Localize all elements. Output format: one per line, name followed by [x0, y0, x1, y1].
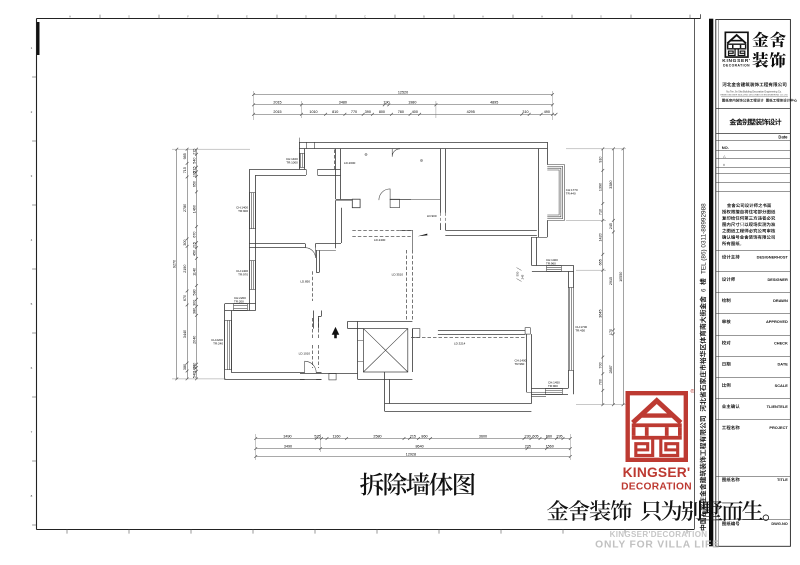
svg-text:245: 245	[521, 274, 525, 279]
svg-text:390: 390	[365, 110, 371, 114]
svg-text:985: 985	[183, 153, 187, 159]
svg-text:E: E	[246, 15, 248, 19]
svg-text:190: 190	[383, 101, 389, 105]
svg-text:1010: 1010	[309, 110, 317, 114]
svg-text:490: 490	[544, 110, 550, 114]
svg-text:650: 650	[192, 181, 196, 187]
svg-text:1420: 1420	[599, 233, 603, 241]
svg-text:3380: 3380	[609, 180, 613, 188]
svg-text:1390: 1390	[599, 183, 603, 191]
svg-text:9270: 9270	[173, 260, 177, 268]
svg-text:TR:1000: TR:1000	[286, 161, 298, 165]
svg-text:235: 235	[525, 444, 531, 448]
svg-text:TR:970: TR:970	[238, 273, 248, 277]
svg-text:TR:900: TR:900	[548, 384, 558, 388]
svg-text:535: 535	[314, 434, 320, 438]
svg-text:580: 580	[192, 289, 196, 295]
svg-text:3480: 3480	[339, 101, 347, 105]
svg-text:Date: Date	[778, 135, 788, 140]
svg-text:LD.3214: LD.3214	[454, 342, 466, 346]
svg-text:670: 670	[192, 232, 196, 238]
svg-text:H: H	[541, 15, 543, 19]
svg-text:3600: 3600	[479, 434, 487, 438]
svg-text:1160: 1160	[333, 434, 341, 438]
svg-text:3645: 3645	[599, 309, 603, 317]
svg-text:2780: 2780	[183, 204, 187, 212]
svg-text:DRAWN: DRAWN	[773, 298, 788, 303]
svg-text:310: 310	[522, 110, 528, 114]
svg-text:910: 910	[599, 157, 603, 163]
svg-text:B: B	[423, 15, 425, 19]
svg-text:2915: 2915	[609, 277, 613, 285]
svg-text:3490: 3490	[283, 434, 291, 438]
svg-text:3440: 3440	[183, 330, 187, 338]
svg-text:170: 170	[609, 329, 613, 335]
svg-text:10550: 10550	[619, 272, 623, 282]
svg-text:605: 605	[532, 434, 538, 438]
svg-text:TR:450: TR:450	[575, 329, 585, 333]
svg-text:TITLE: TITLE	[777, 477, 788, 482]
svg-text:4895: 4895	[490, 101, 498, 105]
svg-text:TR:900: TR:900	[238, 209, 248, 213]
svg-text:12928: 12928	[406, 452, 416, 456]
svg-text:HEBEI KINGSER BUILDING DECORAT: HEBEI KINGSER BUILDING DECORATION ENGINE…	[720, 93, 788, 96]
svg-text:ONLY FOR VILLA LIFE: ONLY FOR VILLA LIFE	[595, 540, 720, 551]
svg-text:710: 710	[599, 209, 603, 215]
svg-text:700: 700	[599, 379, 603, 385]
svg-text:665: 665	[599, 259, 603, 265]
svg-text:2040: 2040	[192, 336, 196, 344]
svg-text:215: 215	[192, 242, 196, 248]
svg-text:DECORATION: DECORATION	[621, 482, 692, 493]
svg-text:D: D	[305, 15, 307, 19]
svg-text:550: 550	[516, 271, 520, 276]
svg-text:6: 6	[701, 288, 708, 292]
svg-text:2190: 2190	[183, 265, 187, 273]
svg-text:12520: 12520	[398, 90, 408, 94]
svg-text:2015: 2015	[273, 101, 281, 105]
svg-text:810: 810	[332, 110, 338, 114]
svg-text:660: 660	[546, 434, 552, 438]
svg-text:LD.1010: LD.1010	[299, 352, 311, 356]
svg-text:215: 215	[192, 149, 196, 155]
svg-text:DECORATION: DECORATION	[723, 64, 750, 68]
svg-text:380: 380	[192, 308, 196, 314]
svg-text:SCALE: SCALE	[775, 383, 789, 388]
svg-text:G: G	[128, 15, 130, 19]
svg-text:215: 215	[410, 434, 416, 438]
svg-text:670: 670	[183, 295, 187, 301]
svg-text:780: 780	[398, 110, 404, 114]
svg-text:TEL (86) 0311-88992988: TEL (86) 0311-88992988	[700, 203, 707, 274]
svg-text:1460: 1460	[192, 205, 196, 213]
svg-text:DWG.NO: DWG.NO	[771, 521, 787, 526]
svg-text:DATE: DATE	[777, 362, 788, 367]
svg-text:KINGSER': KINGSER'	[623, 465, 691, 480]
svg-text:4295: 4295	[467, 110, 475, 114]
svg-text:LD.2400: LD.2400	[374, 238, 386, 242]
svg-text:295: 295	[556, 434, 562, 438]
svg-text:®: ®	[691, 388, 695, 395]
svg-text:1980: 1980	[408, 101, 416, 105]
svg-text:8640: 8640	[415, 444, 423, 448]
svg-text:380: 380	[183, 364, 187, 370]
svg-text:No.Ten Jin Sha Building Decora: No.Ten Jin Sha Building Decoration Engin…	[726, 91, 782, 94]
svg-text:715: 715	[183, 167, 187, 173]
svg-text:TR:240: TR:240	[213, 342, 223, 346]
svg-text:G: G	[600, 15, 602, 19]
svg-text:700: 700	[599, 362, 603, 368]
svg-text:C: C	[364, 15, 366, 19]
svg-text:PROJECT: PROJECT	[769, 425, 788, 430]
svg-text:H: H	[69, 15, 71, 19]
svg-text:LD.3510: LD.3510	[392, 273, 404, 277]
svg-text:DESIGNERHOST: DESIGNERHOST	[757, 255, 789, 260]
svg-text:2015: 2015	[273, 110, 281, 114]
svg-text:A: A	[482, 15, 484, 19]
svg-text:195: 195	[192, 171, 196, 177]
svg-text:LD.850: LD.850	[300, 279, 310, 283]
svg-text:1560: 1560	[546, 444, 554, 448]
svg-text:TR:960: TR:960	[546, 262, 556, 266]
svg-text:770: 770	[351, 110, 357, 114]
svg-text:400: 400	[412, 110, 418, 114]
svg-text:300: 300	[183, 240, 187, 246]
svg-text:TLIENTELE: TLIENTELE	[767, 404, 789, 409]
svg-text:TR:200: TR:200	[234, 300, 244, 304]
svg-text:3490: 3490	[284, 444, 292, 448]
svg-text:140: 140	[192, 366, 196, 372]
svg-text:245: 245	[609, 223, 613, 229]
svg-text:540: 540	[192, 372, 196, 378]
svg-text:1140: 1140	[192, 268, 196, 276]
svg-text:LD.900: LD.900	[427, 214, 437, 218]
svg-text:KINGSER'DECORATION: KINGSER'DECORATION	[610, 530, 708, 539]
svg-text:540: 540	[192, 158, 196, 164]
svg-text:NO.: NO.	[722, 145, 729, 150]
svg-text:2887: 2887	[609, 365, 613, 373]
svg-text:230: 230	[525, 434, 531, 438]
svg-text:DESIGNER: DESIGNER	[767, 277, 788, 282]
svg-text:450: 450	[192, 250, 196, 256]
svg-text:LD.2000: LD.2000	[344, 161, 356, 165]
svg-text:TR:960: TR:960	[515, 362, 525, 366]
svg-text:TR:440: TR:440	[566, 192, 576, 196]
svg-text:±: ±	[723, 163, 725, 167]
svg-text:800: 800	[379, 110, 385, 114]
svg-text:CHECK: CHECK	[774, 340, 788, 345]
svg-text:APPROVED: APPROVED	[766, 319, 788, 324]
svg-text:300: 300	[192, 300, 196, 306]
svg-text:2580: 2580	[373, 434, 381, 438]
svg-text:860: 860	[421, 434, 427, 438]
